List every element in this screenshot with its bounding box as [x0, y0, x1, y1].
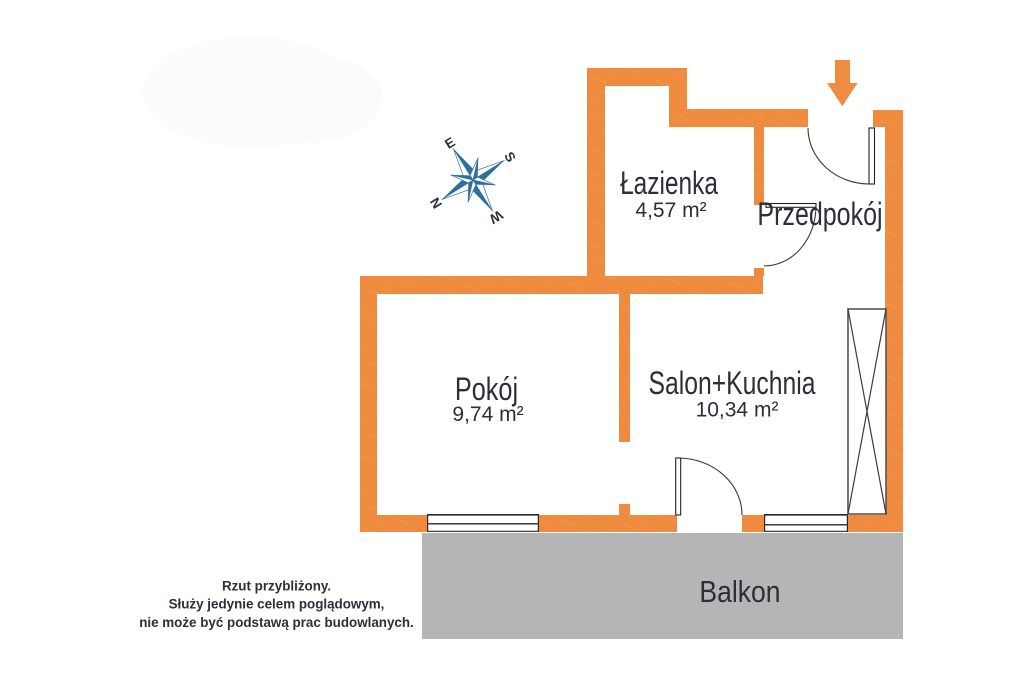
svg-text:Balkon: Balkon — [699, 575, 780, 609]
svg-text:E: E — [442, 134, 458, 151]
svg-text:S: S — [501, 149, 518, 165]
svg-text:Łazienka: Łazienka — [620, 166, 718, 202]
svg-text:W: W — [486, 207, 505, 227]
svg-text:Przedpokój: Przedpokój — [757, 197, 882, 233]
svg-text:nie może być podstawą prac bud: nie może być podstawą prac budowlanych. — [139, 615, 414, 630]
svg-text:4,57 m²: 4,57 m² — [635, 199, 706, 222]
svg-text:9,74 m²: 9,74 m² — [452, 403, 523, 426]
svg-text:10,34 m²: 10,34 m² — [696, 399, 779, 422]
svg-text:Salon+Kuchnia: Salon+Kuchnia — [649, 366, 816, 402]
svg-text:Służy jedynie celem poglądowym: Służy jedynie celem poglądowym, — [169, 597, 385, 612]
svg-text:Rzut przybliżony.: Rzut przybliżony. — [222, 579, 331, 594]
svg-text:N: N — [427, 195, 445, 211]
